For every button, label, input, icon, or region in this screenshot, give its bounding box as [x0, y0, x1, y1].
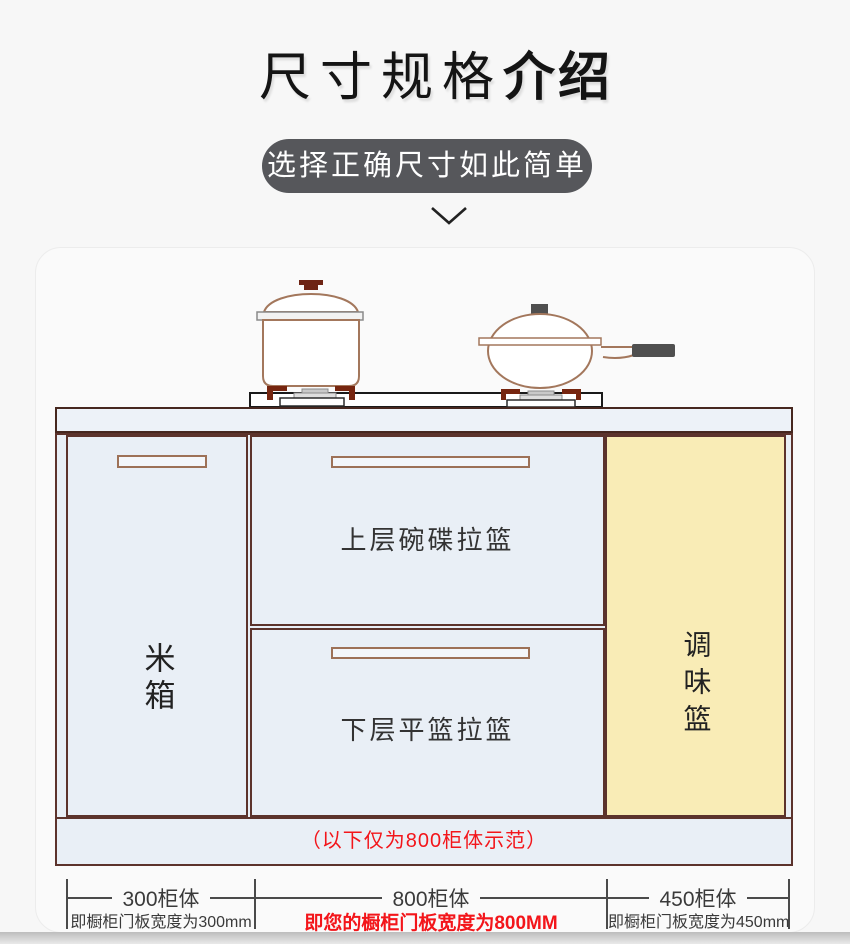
page-title: 尺寸规格介绍: [0, 48, 850, 108]
rice-box-door: 米箱: [66, 435, 248, 817]
dimension-line: [608, 897, 649, 899]
dimension-800: 800柜体: [256, 886, 606, 910]
dimension-sublabel-800: 即您的橱柜门板宽度为800MM: [256, 908, 606, 935]
stock-pot-icon: [257, 280, 363, 386]
rice-box-label: 米箱: [142, 642, 173, 716]
dimension-450: 450柜体: [608, 886, 788, 910]
page-title-bold: 介绍: [503, 49, 613, 107]
dimension-line: [68, 897, 112, 899]
countertop: [55, 407, 793, 433]
spice-basket-panel: 调味篮: [605, 435, 786, 817]
spice-basket-label: 调味篮: [682, 630, 710, 741]
cabinet-frame: 米箱 上层碗碟拉篮 下层平篮拉篮 调味篮 （以下仅为800柜体示范）: [55, 433, 793, 866]
dimension-line: [210, 897, 254, 899]
drawer-handle: [331, 456, 530, 468]
lower-drawer: 下层平篮拉篮: [250, 628, 605, 817]
cabinet-plinth: （以下仅为800柜体示范）: [57, 817, 791, 864]
door-handle: [117, 455, 207, 468]
cookware-scene: [0, 252, 850, 408]
wok-icon: [479, 304, 675, 388]
lower-drawer-label: 下层平篮拉篮: [252, 710, 603, 747]
page: 尺寸规格介绍 选择正确尺寸如此简单: [0, 0, 850, 944]
subtitle-pill: 选择正确尺寸如此简单: [262, 139, 592, 193]
drawer-handle: [331, 647, 530, 659]
plinth-note: （以下仅为800柜体示范）: [301, 830, 547, 852]
dimension-line: [256, 897, 382, 899]
upper-drawer: 上层碗碟拉篮: [250, 435, 605, 626]
page-title-regular: 尺寸规格: [259, 49, 503, 107]
dimension-line: [480, 897, 606, 899]
chevron-down-icon: [429, 204, 469, 228]
dimension-sublabel-450: 即橱柜门板宽度为450mm: [608, 908, 788, 932]
dimension-300: 300柜体: [68, 886, 254, 910]
dimension-line: [747, 897, 788, 899]
upper-drawer-label: 上层碗碟拉篮: [252, 520, 603, 557]
dimension-sublabel-300: 即橱柜门板宽度为300mm: [68, 908, 254, 932]
